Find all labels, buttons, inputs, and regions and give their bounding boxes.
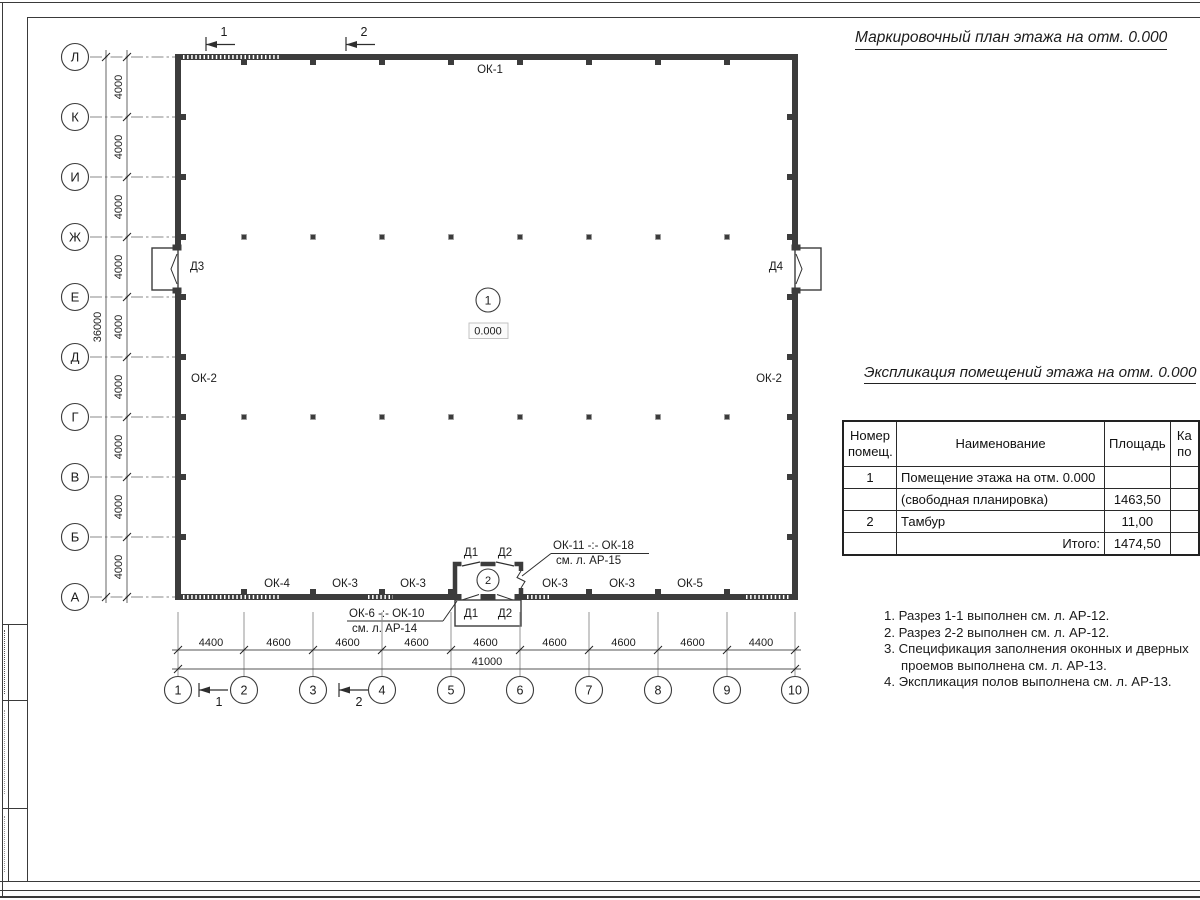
dim-value: 4000 — [113, 75, 125, 99]
cell-cut — [1170, 489, 1199, 511]
table-row: (свободная планировка) 1463,50 — [843, 489, 1199, 511]
window-label: ОК-3 — [542, 578, 568, 590]
wall-pilaster — [787, 234, 792, 240]
header-text: Ка — [1177, 428, 1192, 443]
table-row: 1 Помещение этажа на отм. 0.000 — [843, 467, 1199, 489]
dim-value: 4000 — [113, 135, 125, 159]
header-text: по — [1177, 444, 1191, 459]
dim-value: 4400 — [749, 637, 773, 649]
interior-column — [311, 415, 316, 420]
door-porch — [795, 248, 821, 290]
callout-ok6-ok10: ОК-6 -:- ОК-10 см. л. АР-14 — [347, 601, 457, 635]
dim-value: 4600 — [473, 637, 497, 649]
cell-number — [843, 489, 897, 511]
row-axis-label: Ж — [69, 230, 81, 245]
floor-plan-svg: Д3 Д4 2 Д1 — [0, 0, 840, 730]
wall-pilaster — [448, 60, 454, 65]
wall-pilaster — [787, 354, 792, 360]
room-number: 1 — [485, 294, 492, 308]
cell-number: 1 — [843, 467, 897, 489]
table-row: 2 Тамбур 11,00 — [843, 511, 1199, 533]
row-axis-label: И — [70, 170, 79, 185]
row-axis-label: Е — [71, 290, 80, 305]
dim-value: 4000 — [113, 435, 125, 459]
interior-column — [242, 415, 247, 420]
interior-column — [449, 235, 454, 240]
wall-pilaster — [655, 589, 661, 594]
col-axis-label: 9 — [724, 684, 731, 698]
dim-total-value: 36000 — [92, 312, 104, 343]
wall-pilaster — [787, 294, 792, 300]
table-row-total: Итого: 1474,50 — [843, 533, 1199, 556]
door-label: Д2 — [498, 608, 512, 620]
section-number: 1 — [216, 695, 223, 709]
window-label: ОК-3 — [400, 578, 426, 590]
section-mark-1-bottom: 1 — [199, 683, 228, 709]
callout-text: см. л. АР-15 — [556, 555, 621, 567]
section-arrowhead — [346, 41, 357, 48]
wall-pilaster — [655, 60, 661, 65]
row-axis-label: Б — [71, 530, 80, 545]
interior-column — [656, 235, 661, 240]
dim-value: 4000 — [113, 375, 125, 399]
wall-end-cap — [173, 245, 182, 251]
section-mark-2-top: 2 — [346, 25, 375, 51]
window-label-ok2-right: ОК-2 — [756, 373, 782, 385]
note-item: 2. Разрез 2-2 выполнен см. л. АР-12. — [884, 625, 1196, 642]
wall-pilaster — [787, 414, 792, 420]
interior-column — [242, 235, 247, 240]
interior-column — [587, 235, 592, 240]
wall-pilaster — [586, 589, 592, 594]
row-axis-label: К — [71, 110, 79, 125]
note-item: 1. Разрез 1-1 выполнен см. л. АР-12. — [884, 608, 1196, 625]
dim-value: 4600 — [542, 637, 566, 649]
dim-value: 4600 — [680, 637, 704, 649]
level-value: 0.000 — [474, 326, 502, 338]
cell-name: Помещение этажа на отм. 0.000 — [897, 467, 1105, 489]
interior-column — [518, 235, 523, 240]
window-label-ok2-left: ОК-2 — [191, 373, 217, 385]
wall-pilaster — [181, 234, 186, 240]
stamp-cell-line — [2, 808, 27, 809]
cell-cut — [1170, 533, 1199, 556]
window-label: ОК-4 — [264, 578, 290, 590]
col-header-name: Наименование — [897, 421, 1105, 467]
wall-pilaster — [181, 174, 186, 180]
wall-pilaster — [181, 114, 186, 120]
header-text: Номер помещ. — [848, 428, 892, 461]
wall-pilaster — [724, 589, 730, 594]
wall-pilaster — [379, 60, 385, 65]
row-axis-label: Г — [71, 410, 78, 425]
wall-pilaster — [787, 474, 792, 480]
col-axis-label: 7 — [586, 684, 593, 698]
cell-name: Тамбур — [897, 511, 1105, 533]
callout-text: ОК-6 -:- ОК-10 — [349, 608, 424, 620]
callout-text: см. л. АР-14 — [352, 623, 418, 635]
cell-total-label: Итого: — [897, 533, 1105, 556]
interior-column — [725, 235, 730, 240]
section-mark-1-top: 1 — [206, 25, 235, 51]
wall-pilaster — [787, 534, 792, 540]
cell-area: 1463,50 — [1105, 489, 1171, 511]
wall-end-cap — [792, 245, 801, 251]
cell-area — [1105, 467, 1171, 489]
door-label: Д3 — [190, 261, 204, 273]
section-number: 2 — [356, 695, 363, 709]
dim-value: 4000 — [113, 495, 125, 519]
wall-pilaster — [787, 174, 792, 180]
frame-bottom — [0, 881, 1200, 882]
col-header-area: Площадь — [1105, 421, 1171, 467]
wall-pilaster — [787, 114, 792, 120]
wall-pilaster — [724, 60, 730, 65]
dim-value: 4600 — [404, 637, 428, 649]
interior-column — [380, 415, 385, 420]
cell-name: (свободная планировка) — [897, 489, 1105, 511]
door-label: Д4 — [769, 261, 784, 273]
col-axis-label: 1 — [175, 684, 182, 698]
dim-value: 4000 — [113, 315, 125, 339]
row-axis-label: А — [71, 590, 80, 605]
wall-pilaster — [181, 354, 186, 360]
room-number: 2 — [485, 575, 491, 587]
interior-column — [380, 235, 385, 240]
dim-value: 4400 — [199, 637, 223, 649]
window-label: ОК-3 — [609, 578, 635, 590]
wall-pilaster — [310, 60, 316, 65]
wall-pilaster — [181, 534, 186, 540]
door-label: Д2 — [498, 547, 512, 559]
interior-column — [587, 415, 592, 420]
sheet-border-bottom-2 — [0, 896, 1200, 898]
wall-pilaster — [181, 474, 186, 480]
callout-text: ОК-11 -:- ОК-18 — [553, 540, 634, 552]
row-axis-label: Д — [71, 350, 80, 365]
col-axis-label: 5 — [448, 684, 455, 698]
window-label: ОК-5 — [677, 578, 703, 590]
section-number: 2 — [361, 25, 368, 39]
sheet-border-bottom-1 — [0, 890, 1200, 891]
interior-column — [518, 415, 523, 420]
note-item: 3. Спецификация заполнения оконных и две… — [884, 641, 1196, 674]
interior-column — [725, 415, 730, 420]
sheet-title: Маркировочный план этажа на отм. 0.000 — [855, 29, 1167, 50]
wall-pilaster — [379, 589, 385, 594]
drawing-sheet: Д3 Д4 2 Д1 — [0, 0, 1200, 900]
wall-pilaster — [181, 414, 186, 420]
dim-value: 4600 — [266, 637, 290, 649]
cell-cut — [1170, 511, 1199, 533]
interior-column — [656, 415, 661, 420]
explication-table: Номер помещ. Наименование Площадь Капо 1… — [842, 420, 1200, 556]
col-axis-label: 2 — [241, 684, 248, 698]
explication-title: Экспликация помещений этажа на отм. 0.00… — [864, 364, 1196, 384]
cell-number — [843, 533, 897, 556]
col-axis-label: 4 — [379, 684, 386, 698]
wall-pilaster — [241, 60, 247, 65]
col-axis-label: 3 — [310, 684, 317, 698]
wall-end-cap — [173, 288, 182, 294]
cell-area: 11,00 — [1105, 511, 1171, 533]
section-arrowhead — [339, 687, 350, 694]
interior-column — [311, 235, 316, 240]
dim-total-value: 41000 — [472, 656, 503, 668]
wall-end-cap — [792, 288, 801, 294]
row-axis-label: В — [71, 470, 80, 485]
dim-value: 4000 — [113, 195, 125, 219]
dim-value: 4600 — [611, 637, 635, 649]
door-porch — [152, 248, 178, 290]
stamp-text-mark — [4, 816, 5, 872]
interior-column — [449, 415, 454, 420]
section-arrowhead — [206, 41, 217, 48]
col-axis-label: 10 — [788, 684, 802, 698]
wall-pilaster — [517, 60, 523, 65]
section-number: 1 — [221, 25, 228, 39]
cell-total-area: 1474,50 — [1105, 533, 1171, 556]
cell-cut — [1170, 467, 1199, 489]
dim-value: 4600 — [335, 637, 359, 649]
cell-number: 2 — [843, 511, 897, 533]
col-header-cut: Капо — [1170, 421, 1199, 467]
wall-pilaster — [586, 60, 592, 65]
col-axis-label: 8 — [655, 684, 662, 698]
section-mark-2-bottom: 2 — [339, 683, 368, 709]
window-label-ok1: ОК-1 — [477, 64, 503, 76]
dim-value: 4000 — [113, 255, 125, 279]
notes-list: 1. Разрез 1-1 выполнен см. л. АР-12. 2. … — [884, 608, 1196, 691]
row-axis-label: Л — [71, 50, 80, 65]
col-axis-label: 6 — [517, 684, 524, 698]
col-header-number: Номер помещ. — [843, 421, 897, 467]
door-label: Д1 — [464, 608, 478, 620]
note-item: 4. Экспликация полов выполнена см. л. АР… — [884, 674, 1196, 691]
dim-value: 4000 — [113, 555, 125, 579]
window-label: ОК-3 — [332, 578, 358, 590]
section-arrowhead — [199, 687, 210, 694]
wall-pilaster — [241, 589, 247, 594]
door-label: Д1 — [464, 547, 478, 559]
wall-pilaster — [181, 294, 186, 300]
wall-pilaster — [310, 589, 316, 594]
